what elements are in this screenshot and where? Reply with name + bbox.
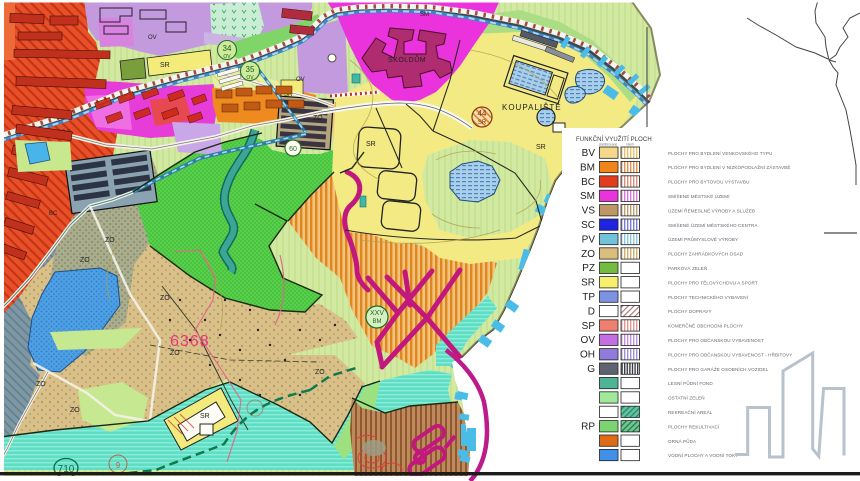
svg-text:ZO: ZO bbox=[581, 249, 595, 260]
svg-text:BV: BV bbox=[582, 148, 596, 159]
svg-text:OV: OV bbox=[581, 335, 596, 346]
svg-text:REKREAČNÍ AREÁL: REKREAČNÍ AREÁL bbox=[668, 409, 713, 415]
svg-text:PLOCHY TECHNICKÉHO VYBAVENÍ: PLOCHY TECHNICKÉHO VYBAVENÍ bbox=[668, 294, 749, 300]
svg-text:35: 35 bbox=[246, 65, 255, 74]
svg-text:ZO: ZO bbox=[315, 369, 325, 376]
svg-text:SMÍŠENÉ MĚSTSKÉ ÚZEMÍ: SMÍŠENÉ MĚSTSKÉ ÚZEMÍ bbox=[668, 192, 730, 199]
svg-text:OV: OV bbox=[223, 54, 231, 60]
svg-text:PLOCHY DOPRAVY: PLOCHY DOPRAVY bbox=[668, 309, 712, 314]
svg-text:SM: SM bbox=[580, 191, 595, 202]
svg-text:PLOCHY PRO BYDLENÍ V NÍZKOPODL: PLOCHY PRO BYDLENÍ V NÍZKOPODLAŽNÍ ZÁSTA… bbox=[668, 163, 791, 170]
svg-text:stabilizované: stabilizované bbox=[599, 143, 618, 147]
svg-text:PLOCHY PRO BYDLENÍ VENKOVSKÉHO: PLOCHY PRO BYDLENÍ VENKOVSKÉHO TYPU bbox=[668, 150, 772, 156]
svg-text:SR: SR bbox=[536, 144, 546, 151]
svg-text:BM: BM bbox=[580, 162, 595, 173]
svg-text:PLOCHY PRO OBČANSKOU VYBAVENOS: PLOCHY PRO OBČANSKOU VYBAVENOST - HŘBITO… bbox=[668, 350, 792, 357]
svg-text:ÚZEMÍ PRŮMYSLOVÉ VÝROBY: ÚZEMÍ PRŮMYSLOVÉ VÝROBY bbox=[668, 236, 738, 242]
svg-text:BC: BC bbox=[49, 211, 58, 217]
svg-text:PLOCHY PRO OBČANSKOU VYBAVENOS: PLOCHY PRO OBČANSKOU VYBAVENOST bbox=[668, 337, 764, 343]
svg-text:TP: TP bbox=[582, 292, 595, 303]
svg-text:PLOCHY PRO TĚLOVÝCHOVU A SPORT: PLOCHY PRO TĚLOVÝCHOVU A SPORT bbox=[668, 278, 758, 285]
svg-text:34: 34 bbox=[223, 44, 232, 53]
svg-text:SR: SR bbox=[581, 278, 595, 289]
svg-text:ZO: ZO bbox=[36, 381, 46, 388]
svg-text:ÚZEMÍ ŘEMESLNÉ VÝROBY A SLUŽEB: ÚZEMÍ ŘEMESLNÉ VÝROBY A SLUŽEB bbox=[668, 206, 755, 213]
svg-text:KOUPALIŠTĚ: KOUPALIŠTĚ bbox=[502, 103, 562, 112]
svg-text:BM: BM bbox=[373, 319, 382, 325]
svg-text:BC: BC bbox=[581, 177, 595, 188]
svg-text:PZ: PZ bbox=[582, 263, 595, 274]
svg-text:PLOCHY ZAHRÁDKOVÝCH OSAD: PLOCHY ZAHRÁDKOVÝCH OSAD bbox=[668, 251, 744, 257]
svg-text:VODNÍ PLOCHY A VODNÍ TOKY: VODNÍ PLOCHY A VODNÍ TOKY bbox=[668, 452, 738, 458]
svg-text:ZO: ZO bbox=[105, 237, 115, 244]
svg-text:PLOCHY REKULTIVACÍ: PLOCHY REKULTIVACÍ bbox=[668, 423, 720, 429]
svg-text:60: 60 bbox=[289, 146, 297, 153]
svg-text:SM: SM bbox=[420, 12, 429, 18]
svg-text:ORNÁ PŮDA: ORNÁ PŮDA bbox=[668, 438, 697, 444]
svg-text:9: 9 bbox=[116, 461, 121, 470]
svg-text:RP: RP bbox=[581, 422, 595, 433]
svg-text:OSTATNÍ ZELEŇ: OSTATNÍ ZELEŇ bbox=[668, 395, 705, 401]
svg-text:SC: SC bbox=[581, 220, 595, 231]
svg-text:ZO: ZO bbox=[170, 350, 180, 357]
svg-text:XXV: XXV bbox=[370, 310, 384, 317]
svg-text:VS: VS bbox=[582, 206, 596, 217]
svg-text:SR: SR bbox=[478, 120, 487, 126]
svg-text:PV: PV bbox=[582, 234, 596, 245]
svg-text:LESNÍ PŮDNÍ FOND: LESNÍ PŮDNÍ FOND bbox=[668, 380, 713, 386]
svg-text:OV: OV bbox=[296, 77, 305, 83]
svg-text:KOMERČNĚ OBCHODNÍ PLOCHY: KOMERČNĚ OBCHODNÍ PLOCHY bbox=[668, 322, 743, 329]
svg-text:6368: 6368 bbox=[170, 333, 210, 350]
svg-text:ŠKOLDŮM: ŠKOLDŮM bbox=[388, 55, 426, 64]
svg-text:SR: SR bbox=[366, 141, 376, 148]
svg-text:SR: SR bbox=[160, 62, 170, 69]
svg-text:ZO: ZO bbox=[313, 115, 323, 122]
svg-text:OV: OV bbox=[246, 75, 254, 81]
svg-text:D: D bbox=[588, 306, 595, 317]
svg-text:PLOCHY PRO GARÁŽE OSOBNÍCH VOZ: PLOCHY PRO GARÁŽE OSOBNÍCH VOZIDEL bbox=[668, 365, 769, 372]
svg-text:ZO: ZO bbox=[160, 295, 170, 302]
svg-text:SR: SR bbox=[200, 413, 210, 420]
svg-text:44: 44 bbox=[478, 109, 487, 118]
svg-text:OH: OH bbox=[580, 350, 595, 361]
svg-text:G: G bbox=[587, 364, 595, 375]
svg-text:SP: SP bbox=[582, 321, 596, 332]
svg-text:OV: OV bbox=[148, 35, 157, 41]
svg-text:ZO: ZO bbox=[70, 407, 80, 414]
svg-text:SMÍŠENÉ ÚZEMÍ MĚSTSKÉHO CENTRA: SMÍŠENÉ ÚZEMÍ MĚSTSKÉHO CENTRA bbox=[668, 221, 758, 228]
svg-text:PLOCHY PRO BYTOVOU VÝSTAVBU: PLOCHY PRO BYTOVOU VÝSTAVBU bbox=[668, 179, 750, 185]
svg-text:ZO: ZO bbox=[80, 257, 90, 264]
svg-text:návrh: návrh bbox=[626, 143, 634, 147]
svg-text:PARKOVÁ ZELEŇ: PARKOVÁ ZELEŇ bbox=[668, 265, 707, 271]
